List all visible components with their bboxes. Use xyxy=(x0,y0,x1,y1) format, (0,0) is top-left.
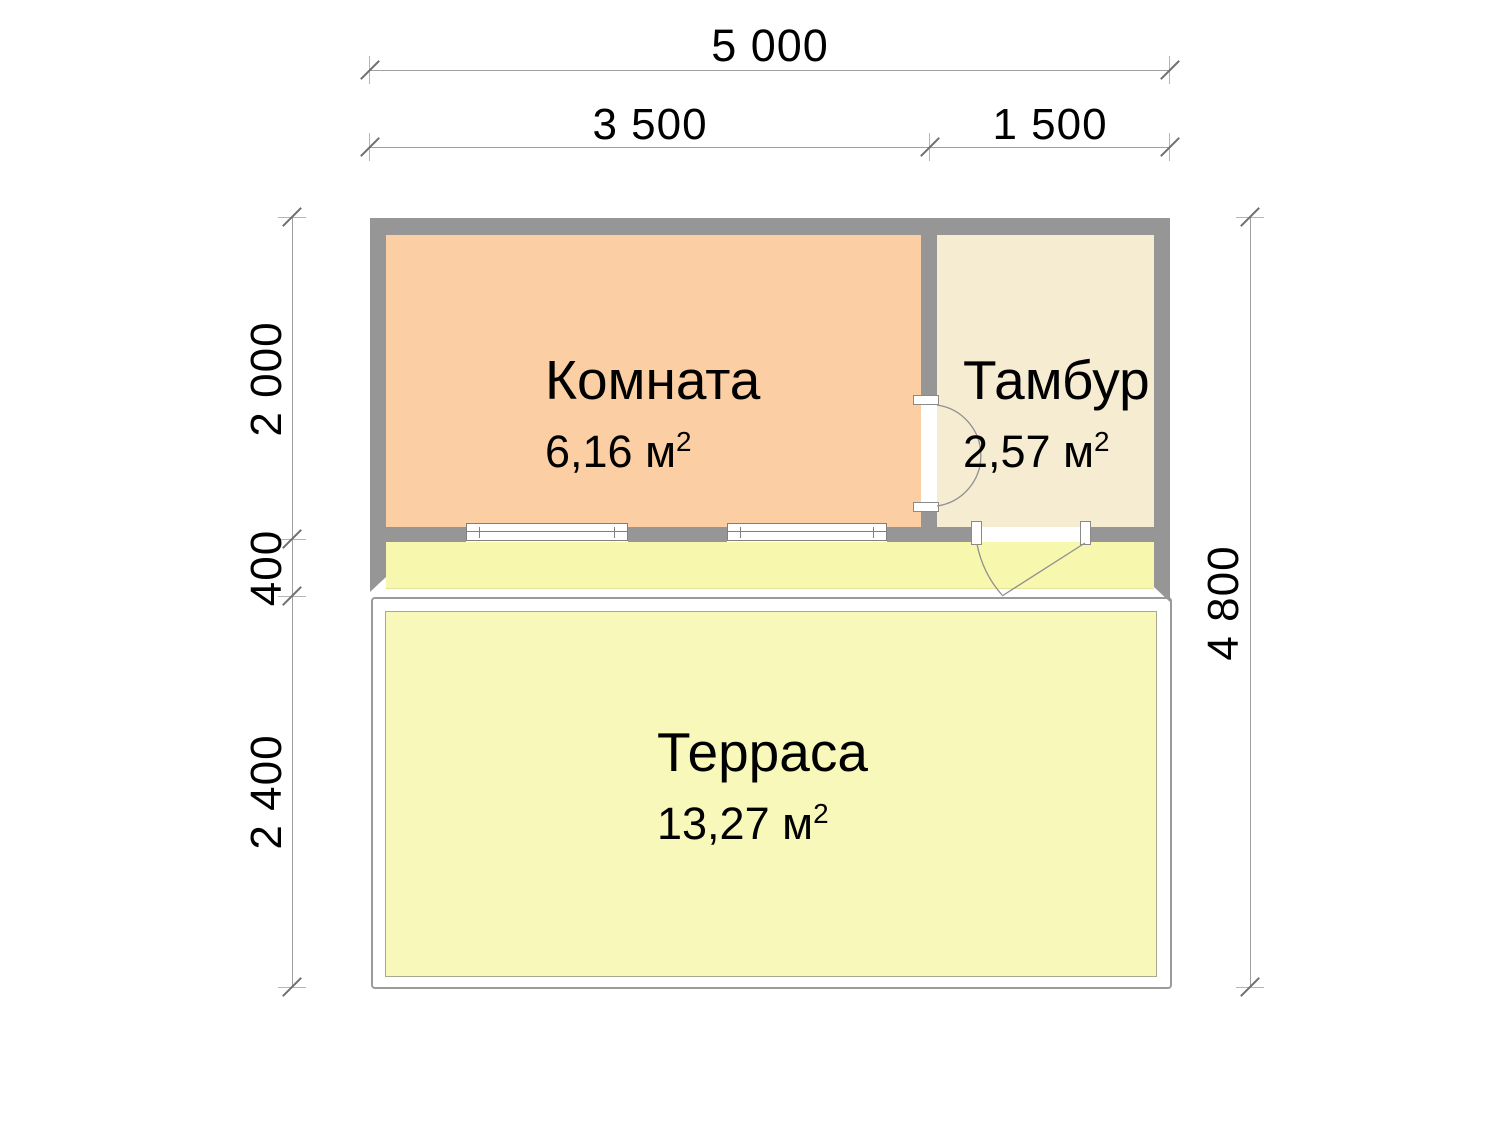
dim-label-total-depth: 4 800 xyxy=(1201,503,1247,703)
window-2 xyxy=(727,523,887,541)
dim-label-terrace-depth: 2 400 xyxy=(244,692,290,892)
window-1-mullion-right xyxy=(614,527,615,538)
porch-strip-fill xyxy=(386,542,1154,589)
dim-label-porch-depth: 400 xyxy=(244,468,290,668)
interior-door-jamb-bottom xyxy=(913,502,939,512)
room-label-terrasa: Терраса 13,27 м2 xyxy=(657,722,868,848)
room-area: 2,57 м2 xyxy=(963,427,1150,477)
room-area-value: 13,27 м xyxy=(657,798,813,849)
dim-label-room-depth: 2 000 xyxy=(244,279,290,479)
window-1-mullion-left xyxy=(479,527,480,538)
dim-line-right xyxy=(1250,218,1251,988)
entry-door-jamb-right xyxy=(1080,521,1091,545)
room-label-tambur: Тамбур 2,57 м2 xyxy=(963,350,1150,476)
interior-door-jamb-top xyxy=(913,395,939,405)
wall-bottom-seg1 xyxy=(370,527,466,542)
room-area-value: 2,57 м xyxy=(963,426,1094,477)
dim-label-tambour-width: 1 500 xyxy=(930,100,1170,150)
room-area-value: 6,16 м xyxy=(545,426,676,477)
dim-label-room-width: 3 500 xyxy=(370,100,930,150)
room-area-sup: 2 xyxy=(813,798,829,829)
dim-label-total-width: 5 000 xyxy=(370,20,1170,72)
entry-door-jamb-left xyxy=(971,521,982,545)
window-2-glazing-line xyxy=(728,531,886,532)
wall-top xyxy=(370,218,1170,235)
wall-bottom-seg2 xyxy=(628,527,727,542)
room-name: Комната xyxy=(545,350,760,411)
wall-interior-upper xyxy=(921,230,937,404)
window-1-glazing-line xyxy=(467,531,627,532)
window-1 xyxy=(466,523,628,541)
room-name: Тамбур xyxy=(963,350,1150,411)
wall-bottom-seg3 xyxy=(887,527,972,542)
room-area-sup: 2 xyxy=(1094,426,1110,457)
wall-bottom-seg4 xyxy=(1082,527,1170,542)
window-2-mullion-right xyxy=(873,527,874,538)
room-area: 13,27 м2 xyxy=(657,799,868,849)
room-label-komnata: Комната 6,16 м2 xyxy=(545,350,760,476)
room-area: 6,16 м2 xyxy=(545,427,760,477)
room-name: Терраса xyxy=(657,722,868,783)
room-area-sup: 2 xyxy=(676,426,692,457)
wall-right xyxy=(1154,218,1170,602)
window-2-mullion-left xyxy=(740,527,741,538)
floor-plan: 5 000 3 500 1 500 2 000 400 2 400 4 800 … xyxy=(0,0,1500,1125)
dim-line-left xyxy=(292,218,293,988)
